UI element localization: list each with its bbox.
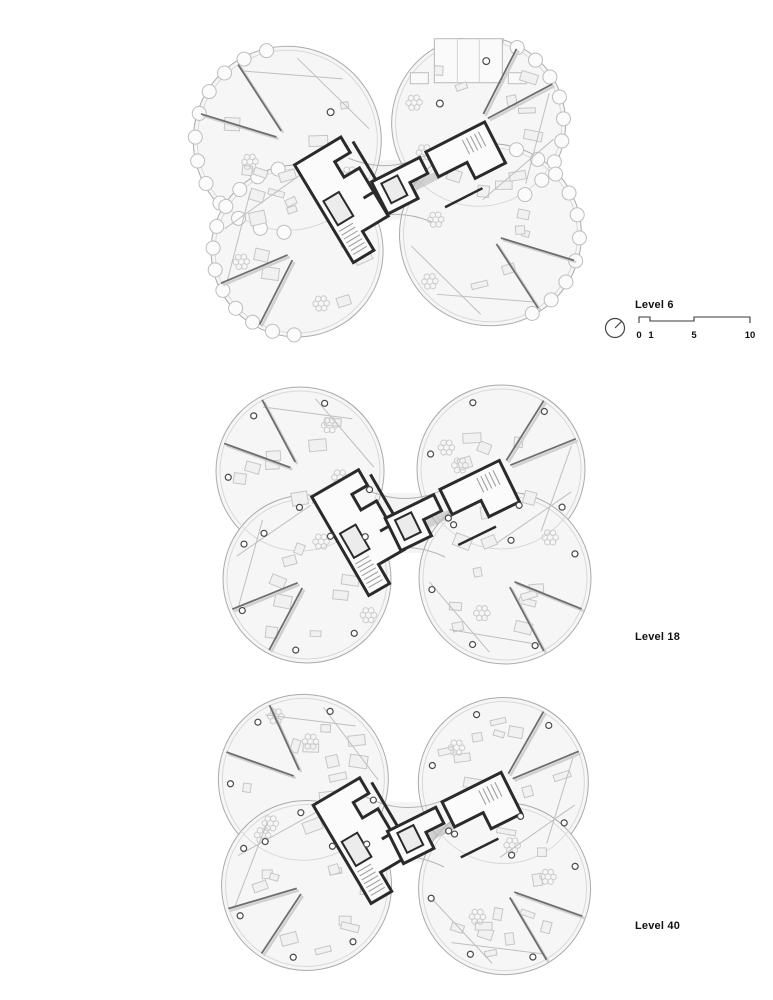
floor-plan-drawing-level-40 (193, 690, 623, 980)
floor-plan-level-6 (180, 38, 610, 348)
drawing-sheet: Level 6 0 1 5 10 Level 18 Level 40 (0, 0, 773, 1000)
floor-plan-level-40 (193, 690, 623, 980)
level-40-label: Level 40 (635, 920, 680, 932)
level-18-label: Level 18 (635, 631, 680, 643)
scale-bar (637, 314, 755, 326)
north-arrow-icon (603, 316, 627, 340)
floor-plan-drawing-level-18 (193, 378, 623, 670)
scale-tick-0: 0 (636, 330, 641, 341)
scale-tick-10: 10 (745, 330, 756, 341)
floor-plan-drawing-level-6 (180, 38, 610, 348)
level-6-label: Level 6 (635, 299, 674, 311)
floor-plan-level-18 (193, 378, 623, 670)
scale-tick-1: 1 (648, 330, 653, 341)
scale-tick-5: 5 (691, 330, 696, 341)
